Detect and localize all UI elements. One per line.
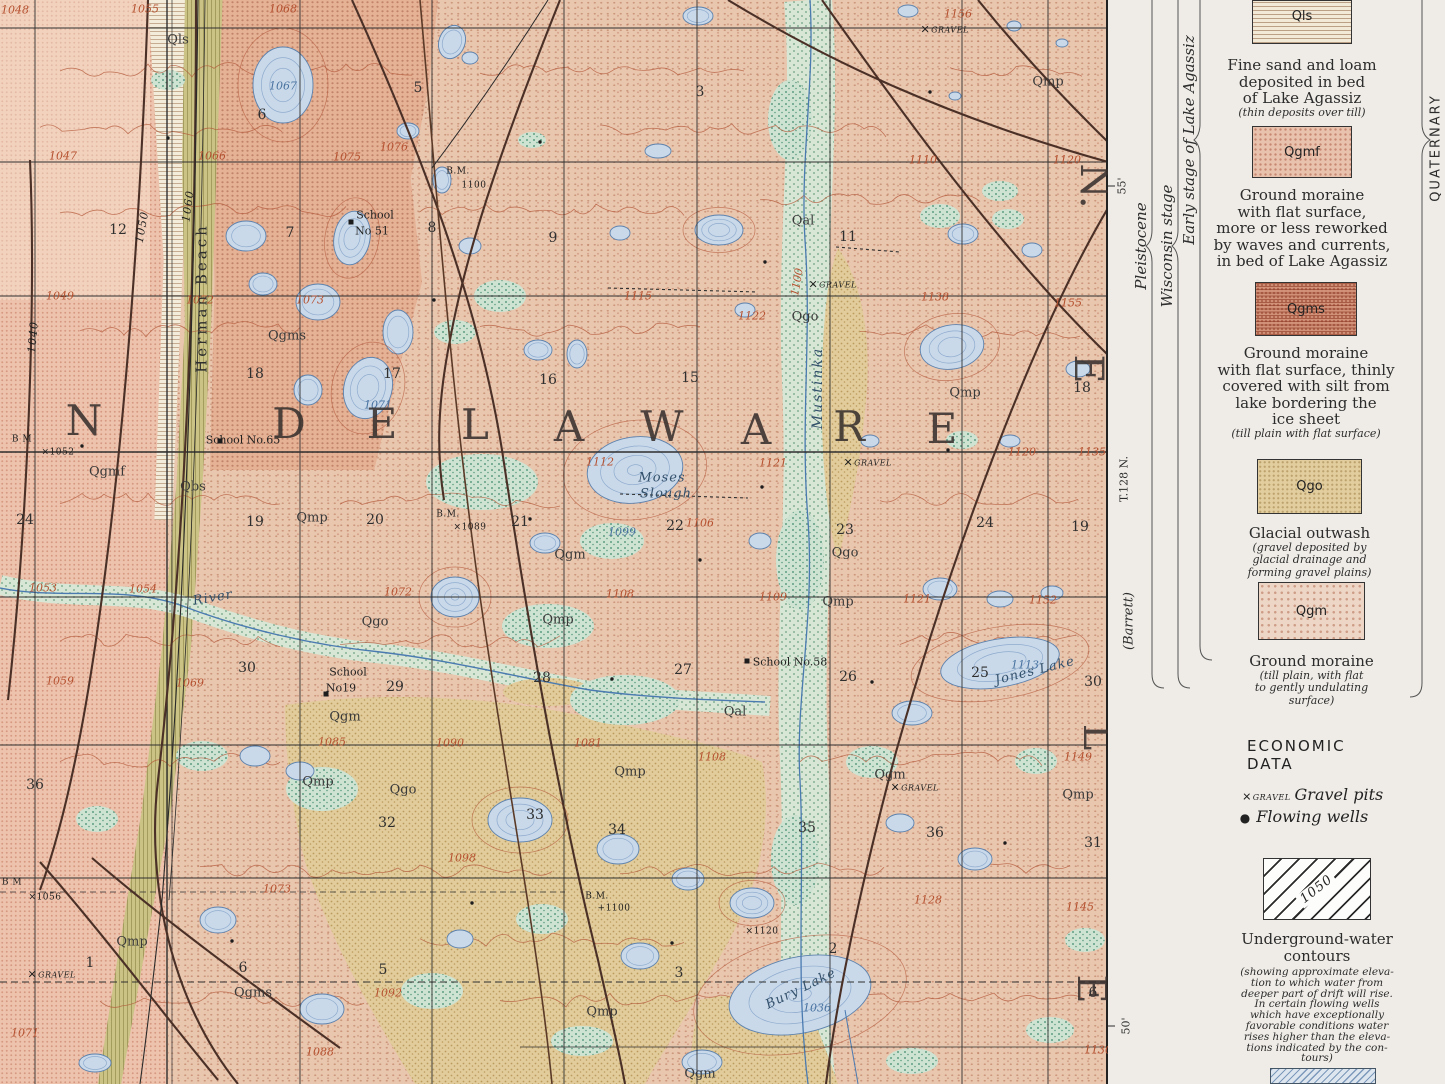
unit-description: by waves and currents, <box>1214 236 1391 254</box>
town-label: (Barrett) <box>1122 592 1137 650</box>
section-number: 16 <box>539 373 557 387</box>
gravel-pick-icon <box>28 971 36 979</box>
township-letter: D <box>272 403 308 445</box>
benchmark-label: B.M. <box>446 168 470 177</box>
contour-elevation-label: 1130 <box>1084 1045 1108 1056</box>
section-number: 6 <box>239 961 248 975</box>
gravel-pit-marker: GRAVEL <box>921 26 969 35</box>
school-label: School <box>356 210 394 221</box>
section-number: 36 <box>26 778 44 792</box>
uw-contour-label: 1040 <box>26 321 40 354</box>
benchmark-label: ×1089 <box>454 524 487 533</box>
latitude-tick-top: 55' <box>1116 177 1129 194</box>
section-number: 35 <box>798 821 816 835</box>
township-letter: N <box>66 400 105 442</box>
section-number: 33 <box>526 808 544 822</box>
contour-elevation-label: 1075 <box>333 152 361 163</box>
legend-margin: 55' T.128 N. (Barrett) 50' Pleistocene W… <box>1108 0 1445 1084</box>
unit-code: Qgo <box>1296 479 1322 494</box>
section-number: 12 <box>109 223 127 237</box>
benchmark-label: ×1120 <box>746 928 779 937</box>
geologic-unit-label: Qgo <box>832 547 859 560</box>
section-number: 23 <box>836 523 854 537</box>
edge-letter: L <box>1077 724 1108 751</box>
gravel-pick-icon <box>809 281 817 289</box>
lake-depth-label: 1099 <box>608 527 636 538</box>
unit-description: more or less reworked <box>1216 219 1388 237</box>
contour-elevation-label: 1110 <box>909 155 937 166</box>
unit-note: (till plain, with flat <box>1260 669 1364 682</box>
geologic-unit-label: Qmp <box>586 1006 617 1019</box>
uw-title: Underground-water <box>1241 930 1393 948</box>
gravel-pick-icon <box>844 459 852 467</box>
unit-description: Ground moraine <box>1244 344 1369 362</box>
schoolhouse-icon <box>218 439 223 444</box>
region-qgms <box>210 0 438 470</box>
unit-description: deposited in bed <box>1239 73 1365 91</box>
contour-elevation-label: 1120 <box>1008 447 1036 458</box>
unit-description: of Lake Agassiz <box>1243 89 1361 107</box>
contour-elevation-label: 1072 <box>384 587 412 598</box>
contour-elevation-label: 1073 <box>296 295 324 306</box>
geologic-unit-label: Qbs <box>180 481 206 494</box>
unit-code: Qls <box>1292 9 1313 24</box>
schoolhouse-icon <box>324 692 329 697</box>
legend-swatch-qgm: Qgm <box>1258 582 1365 640</box>
section-number: 19 <box>246 515 264 529</box>
unit-note: glacial drainage and <box>1252 553 1366 566</box>
township-letter: W <box>640 406 685 448</box>
unit-description: with flat surface, <box>1238 203 1367 221</box>
section-number: 34 <box>608 823 626 837</box>
unit-code: Qgmf <box>1284 145 1320 160</box>
contour-elevation-label: 1055 <box>131 4 159 15</box>
section-number: 3 <box>696 85 705 99</box>
section-number: 17 <box>383 367 401 381</box>
contour-elevation-label: 1149 <box>1064 752 1092 763</box>
unit-note: surface) <box>1289 694 1335 707</box>
school-label: School No.58 <box>753 657 828 668</box>
legend-swatch-qgmf: Qgmf <box>1252 126 1352 178</box>
geologic-unit-label: Qgm <box>684 1068 715 1081</box>
contour-elevation-label: 1121 <box>903 594 931 605</box>
section-number: 5 <box>414 81 423 95</box>
section-number: 31 <box>1084 836 1102 850</box>
contour-elevation-label: 1106 <box>686 518 714 529</box>
section-number: 7 <box>286 226 295 240</box>
benchmark-label: B.M. <box>436 511 460 520</box>
section-number: 29 <box>386 680 404 694</box>
township-letter: E <box>367 403 400 445</box>
unit-description: Fine sand and loam <box>1227 56 1376 74</box>
geologic-unit-label: Qls <box>167 34 189 47</box>
contour-elevation-label: 1128 <box>914 895 942 906</box>
contour-elevation-label: 1047 <box>49 151 77 162</box>
section-number: 28 <box>533 671 551 685</box>
uw-title: contours <box>1284 947 1351 965</box>
section-number: 19 <box>1071 520 1089 534</box>
well-dot-icon: ● <box>1240 811 1250 825</box>
unit-note: forming gravel plains) <box>1248 566 1372 579</box>
contour-elevation-label: 1085 <box>318 737 346 748</box>
map-canvas[interactable]: 1048105510681047106610751076104910721073… <box>0 0 1108 1084</box>
lake-depth-label: 1067 <box>269 81 297 92</box>
benchmark-label: ×1052 <box>42 449 75 458</box>
latitude-tick-bottom: 50' <box>1120 1017 1133 1034</box>
school-label: No19 <box>326 683 356 694</box>
era-label-quaternary: QUATERNARY <box>1429 94 1444 202</box>
contour-elevation-label: 1145 <box>1066 902 1094 913</box>
section-number: 9 <box>549 231 558 245</box>
township-range-label: T.128 N. <box>1118 456 1131 502</box>
section-number: 30 <box>238 661 256 675</box>
section-number: 21 <box>511 515 529 529</box>
unit-note: (thin deposits over till) <box>1238 106 1365 119</box>
legend-swatch-qgms: Qgms <box>1255 282 1357 336</box>
geologic-unit-label: Qmp <box>1032 76 1063 89</box>
geologic-unit-label: Qgo <box>390 784 417 797</box>
unit-note: (till plain with flat surface) <box>1231 427 1380 440</box>
water-name-label: Herman Beach <box>195 223 210 373</box>
geologic-unit-label: Qgmf <box>89 466 125 479</box>
township-letter: L <box>461 404 491 446</box>
unit-note: to gently undulating <box>1255 681 1368 694</box>
contour-elevation-label: 1090 <box>436 738 464 749</box>
section-number: 24 <box>976 516 994 530</box>
contour-elevation-label: 1068 <box>269 4 297 15</box>
township-letter: A <box>741 409 773 451</box>
geologic-unit-label: Qgo <box>792 311 819 324</box>
legend-swatch-partial <box>1270 1068 1376 1084</box>
water-name-label: Mustinka <box>811 347 825 430</box>
benchmark-label: 1100 <box>462 182 487 191</box>
flowing-wells-label: Flowing wells <box>1256 807 1368 826</box>
water-name-label: River <box>192 588 234 608</box>
section-number: 27 <box>674 663 692 677</box>
contour-elevation-label: 1048 <box>1 5 29 16</box>
stage-label-early-agassiz: Early stage of Lake Agassiz <box>1180 35 1198 244</box>
section-number: 11 <box>839 230 857 244</box>
school-label: School <box>329 667 367 678</box>
unit-description: lake bordering the <box>1235 394 1376 412</box>
section-number: 24 <box>16 513 34 527</box>
geologic-unit-label: Qal <box>792 215 815 228</box>
contour-elevation-label: 1073 <box>263 884 291 895</box>
gravel-pit-marker: GRAVEL <box>844 459 892 468</box>
contour-elevation-label: 1108 <box>606 589 634 600</box>
contour-elevation-label: 1156 <box>944 9 972 20</box>
unit-code: Qgm <box>1296 604 1327 619</box>
contour-elevation-label: 1138 <box>921 292 949 303</box>
contour-elevation-label: 1059 <box>46 676 74 687</box>
legend-swatch-uw-contours: 1050 <box>1263 858 1371 920</box>
benchmark-label: +1100 <box>598 905 631 914</box>
gravel-pits-label: Gravel pits <box>1295 785 1384 804</box>
geologic-unit-label: Qmp <box>822 596 853 609</box>
section-number: 5 <box>379 963 388 977</box>
section-number: 22 <box>666 519 684 533</box>
benchmark-label: ×1056 <box>29 894 62 903</box>
unit-note: (gravel deposited by <box>1253 541 1367 554</box>
geologic-unit-label: Qgm <box>329 711 360 724</box>
geologic-unit-label: Qal <box>724 706 747 719</box>
geologic-map-sheet: 1048105510681047106610751076104910721073… <box>0 0 1445 1084</box>
contour-elevation-label: 1121 <box>759 458 787 469</box>
section-number: 36 <box>926 826 944 840</box>
legend-gravel-pits: GRAVELGravel pits <box>1243 785 1383 804</box>
geologic-unit-label: Qmp <box>542 614 573 627</box>
unit-description: with flat surface, thinly <box>1217 361 1394 379</box>
uw-contour-value: 1050 <box>1295 870 1338 908</box>
gravel-pick-icon <box>1243 793 1251 801</box>
stage-label-wisconsin: Wisconsin stage <box>1158 185 1176 308</box>
gravel-pick-icon <box>921 26 929 34</box>
section-number: 26 <box>839 670 857 684</box>
lake-depth-label: 1036 <box>803 1003 831 1014</box>
section-number: 25 <box>971 666 989 680</box>
section-number: 30 <box>1084 675 1102 689</box>
economic-data-heading: ECONOMIC DATA <box>1247 737 1379 773</box>
contour-elevation-label: 1135 <box>1078 447 1106 458</box>
section-number: 3 <box>675 966 684 980</box>
benchmark-label: B.M. <box>585 893 609 902</box>
contour-elevation-label: 1049 <box>46 291 74 302</box>
geologic-unit-label: Qgms <box>234 987 272 1000</box>
section-number: 8 <box>428 221 437 235</box>
gravel-pit-marker: GRAVEL <box>891 784 939 793</box>
township-letter: A <box>554 406 586 448</box>
unit-description: Ground moraine <box>1240 186 1365 204</box>
contour-elevation-label: 1053 <box>29 583 57 594</box>
section-number: 15 <box>681 371 699 385</box>
geologic-unit-label: Qgo <box>362 616 389 629</box>
contour-elevation-label: 1115 <box>624 291 652 302</box>
unit-description: in bed of Lake Agassiz <box>1217 252 1388 270</box>
gravel-symbol-text: GRAVEL <box>1253 793 1291 802</box>
unit-description: covered with silt from <box>1222 377 1389 395</box>
contour-elevation-label: 1081 <box>574 738 602 749</box>
township-letter: E <box>927 408 960 450</box>
edge-letter: E <box>1068 354 1108 383</box>
contour-elevation-label: 1152 <box>1029 595 1057 606</box>
contour-elevation-label: 1100 <box>789 267 805 296</box>
contour-elevation-label: 1155 <box>1054 298 1082 309</box>
contour-elevation-label: 1108 <box>698 752 726 763</box>
contour-elevation-label: 1122 <box>738 311 766 322</box>
geologic-unit-label: Qgm <box>874 769 905 782</box>
contour-elevation-label: 1076 <box>380 142 408 153</box>
geologic-unit-label: Qmp <box>1062 789 1093 802</box>
geologic-unit-label: Qmp <box>116 936 147 949</box>
contour-elevation-label: 1088 <box>306 1047 334 1058</box>
township-letter: R <box>833 406 867 448</box>
contour-elevation-label: 1098 <box>448 853 476 864</box>
section-number: 32 <box>378 816 396 830</box>
gravel-pit-marker: GRAVEL <box>28 971 76 980</box>
geologic-unit-label: Qgms <box>268 330 306 343</box>
geologic-unit-label: Qmp <box>949 387 980 400</box>
schoolhouse-icon <box>349 220 354 225</box>
geologic-unit-label: Qgm <box>554 549 585 562</box>
contour-elevation-label: 1066 <box>198 151 226 162</box>
gravel-pit-marker: GRAVEL <box>809 281 857 290</box>
legend-swatch-qls: Qls <box>1252 0 1352 44</box>
section-number: 18 <box>246 367 264 381</box>
geologic-unit-label: Qmp <box>296 512 327 525</box>
section-number: 1 <box>86 956 95 970</box>
section-number: 2 <box>829 942 838 956</box>
legend-flowing-wells: ●Flowing wells <box>1240 807 1368 826</box>
section-number: 20 <box>366 513 384 527</box>
contour-elevation-label: 1054 <box>129 584 157 595</box>
contour-elevation-label: 1069 <box>176 678 204 689</box>
unit-description: Ground moraine <box>1249 652 1374 670</box>
contour-elevation-label: 1092 <box>374 988 402 999</box>
section-number: 6 <box>258 108 267 122</box>
unit-code: Qgms <box>1287 302 1325 317</box>
schoolhouse-icon <box>745 659 750 664</box>
benchmark-label: B M <box>2 879 22 888</box>
benchmark-label: B M <box>12 436 32 445</box>
gravel-pick-icon <box>891 784 899 792</box>
edge-letter: N. <box>1074 163 1108 208</box>
unit-description: ice sheet <box>1272 410 1340 428</box>
water-name-label: Moses <box>638 472 685 485</box>
stage-label-pleistocene: Pleistocene <box>1132 202 1150 289</box>
water-name-label: Slough <box>640 488 692 501</box>
unit-description: Glacial outwash <box>1249 524 1370 542</box>
edge-letter: E <box>1071 974 1108 1003</box>
school-label: No 51 <box>355 226 389 237</box>
contour-elevation-label: 1112 <box>586 457 614 468</box>
geologic-unit-label: Qmp <box>302 776 333 789</box>
geologic-unit-label: Qmp <box>614 766 645 779</box>
uw-note-line: tours) <box>1301 1052 1333 1064</box>
contour-elevation-label: 1071 <box>11 1028 39 1039</box>
contour-elevation-label: 1109 <box>759 592 787 603</box>
legend-swatch-qgo: Qgo <box>1257 459 1362 514</box>
